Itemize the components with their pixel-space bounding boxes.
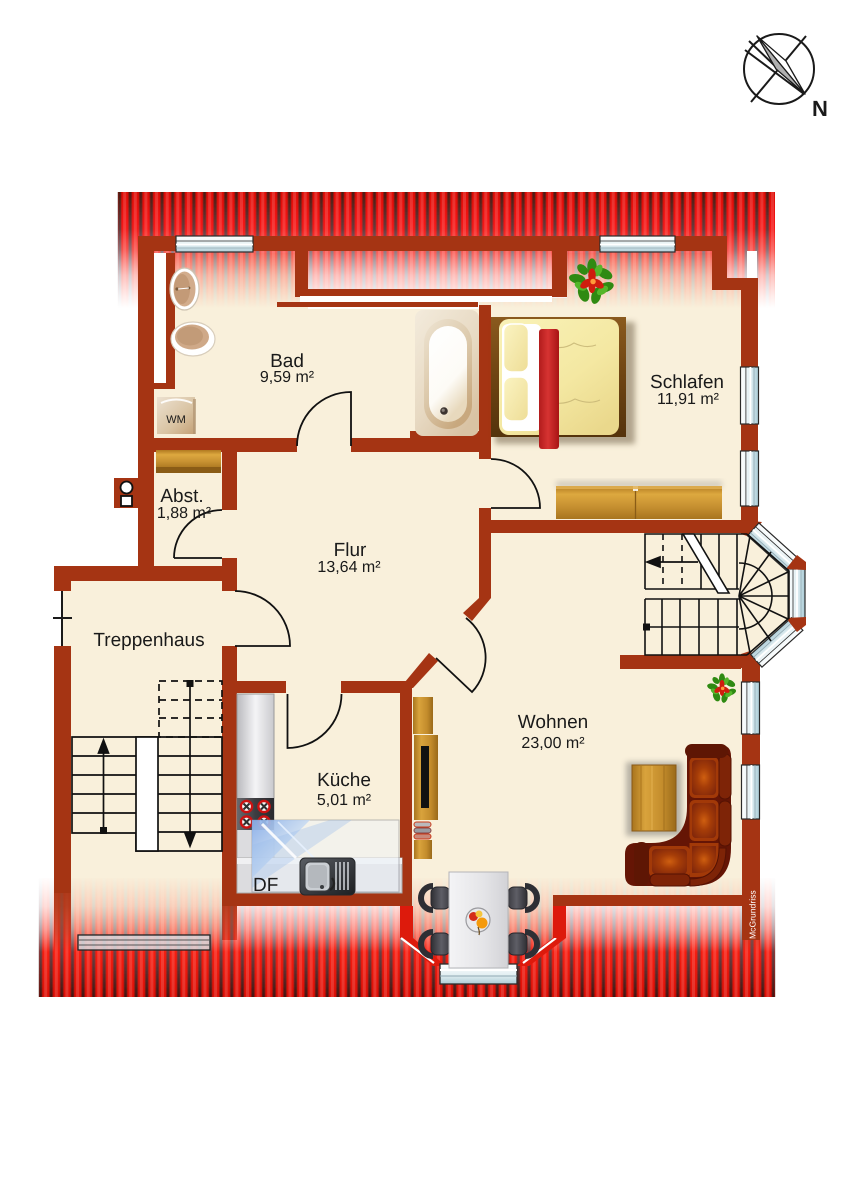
svg-text:DF: DF — [253, 875, 278, 896]
svg-text:N: N — [812, 96, 828, 121]
svg-text:5,01 m²: 5,01 m² — [317, 792, 372, 809]
svg-text:Küche: Küche — [317, 770, 371, 791]
svg-text:23,00 m²: 23,00 m² — [521, 735, 585, 752]
svg-text:Treppenhaus: Treppenhaus — [93, 630, 204, 651]
svg-text:WM: WM — [166, 414, 186, 426]
svg-text:Flur: Flur — [334, 540, 367, 561]
svg-text:11,91 m²: 11,91 m² — [657, 391, 720, 408]
svg-text:Wohnen: Wohnen — [518, 712, 588, 733]
svg-text:1,88 m²: 1,88 m² — [157, 505, 212, 522]
svg-text:9,59 m²: 9,59 m² — [260, 369, 315, 386]
svg-text:McGrundriss: McGrundriss — [748, 890, 758, 939]
svg-text:Abst.: Abst. — [160, 486, 203, 507]
svg-text:13,64 m²: 13,64 m² — [317, 559, 381, 576]
svg-text:Schlafen: Schlafen — [650, 372, 724, 393]
